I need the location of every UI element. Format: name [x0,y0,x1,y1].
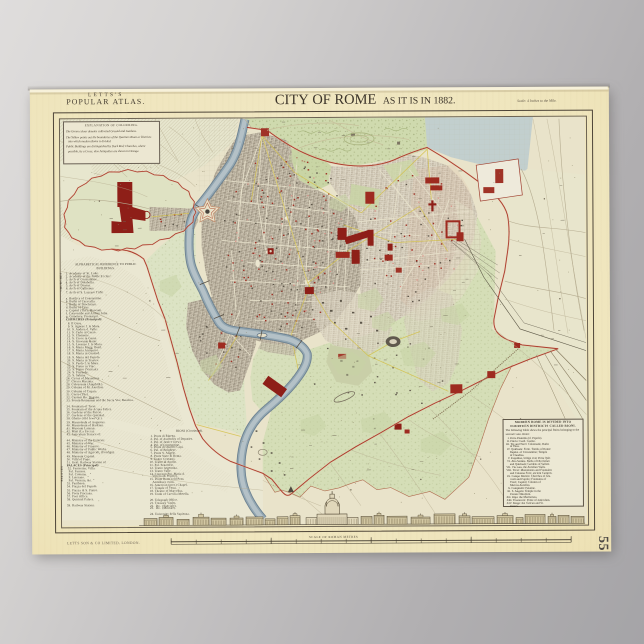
svg-text:SCALE OF ROMAN METRES: SCALE OF ROMAN METRES [309,535,358,539]
